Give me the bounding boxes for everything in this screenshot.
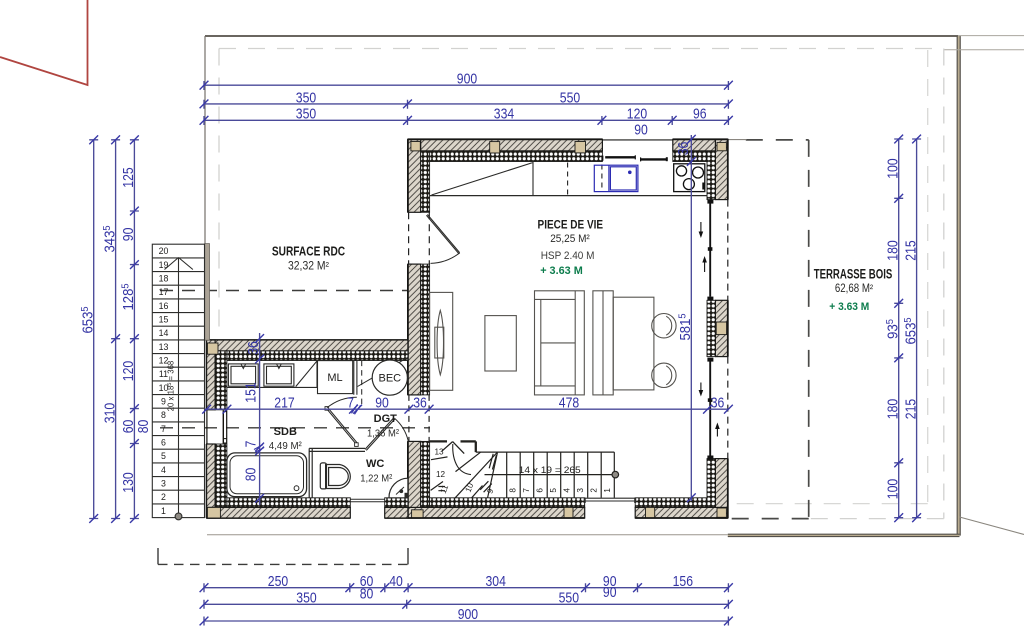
svg-text:14 x 19 = 265: 14 x 19 = 265 [519,465,581,475]
svg-text:151: 151 [243,382,260,402]
svg-text:2: 2 [161,492,166,502]
svg-text:13: 13 [434,448,444,457]
svg-text:900: 900 [458,606,478,623]
svg-text:40: 40 [389,573,403,590]
svg-text:334: 334 [494,106,514,123]
svg-text:180: 180 [885,240,902,260]
svg-text:350: 350 [296,590,316,607]
svg-text:12: 12 [436,470,446,479]
svg-text:PIECE DE VIE: PIECE DE VIE [538,219,604,231]
svg-text:130: 130 [120,472,137,492]
svg-text:+ 3.63 M: + 3.63 M [540,265,583,277]
svg-text:4: 4 [562,488,571,493]
svg-text:TERRASSE BOIS: TERRASSE BOIS [814,267,893,282]
svg-text:7: 7 [522,488,531,493]
svg-text:36: 36 [675,142,692,156]
svg-text:304: 304 [486,573,506,590]
svg-text:7: 7 [243,441,260,448]
svg-text:250: 250 [268,573,288,590]
svg-text:BEC: BEC [378,372,401,384]
svg-text:125: 125 [120,167,137,187]
svg-text:80: 80 [360,585,374,602]
svg-text:90: 90 [120,228,137,242]
svg-text:478: 478 [559,394,579,411]
svg-text:5: 5 [161,451,166,461]
svg-text:90: 90 [603,584,617,601]
svg-text:HSP 2.40 M: HSP 2.40 M [541,250,595,262]
svg-text:8: 8 [508,488,517,493]
svg-text:WC: WC [366,458,384,470]
svg-text:4: 4 [161,465,166,475]
svg-text:1,36 M²: 1,36 M² [367,428,399,440]
svg-text:550: 550 [559,590,579,607]
svg-text:900: 900 [457,71,477,88]
svg-text:6: 6 [535,488,544,493]
svg-text:9: 9 [161,397,166,407]
svg-text:80: 80 [243,468,260,482]
svg-text:180: 180 [885,399,902,419]
svg-text:7: 7 [347,394,354,411]
svg-text:1: 1 [603,488,612,493]
svg-text:7: 7 [161,424,166,434]
svg-text:90: 90 [375,394,389,411]
svg-text:36: 36 [413,394,427,411]
svg-text:+ 3.63 M: + 3.63 M [829,301,869,313]
svg-text:32,32 M²: 32,32 M² [288,260,329,272]
svg-text:215: 215 [902,399,919,419]
svg-text:DGT: DGT [374,413,398,425]
svg-text:62,68 M²: 62,68 M² [835,283,873,295]
svg-text:20: 20 [159,246,169,256]
svg-text:350: 350 [296,106,316,123]
svg-text:SURFACE RDC: SURFACE RDC [272,244,346,259]
svg-text:156: 156 [673,573,693,590]
svg-text:15: 15 [159,315,169,325]
svg-text:215: 215 [902,240,919,260]
svg-text:100: 100 [885,158,902,178]
svg-text:17: 17 [159,287,169,297]
svg-text:5: 5 [549,488,558,493]
svg-text:1,22 M²: 1,22 M² [360,473,392,485]
svg-text:14: 14 [159,328,169,338]
svg-text:20 x 185 = 368: 20 x 185 = 368 [166,361,175,412]
svg-text:3: 3 [576,488,585,493]
svg-text:217: 217 [274,394,294,411]
svg-text:SDB: SDB [274,426,297,438]
svg-text:13: 13 [159,342,169,352]
svg-text:4,49 M²: 4,49 M² [269,440,302,452]
svg-text:8: 8 [161,410,166,420]
svg-text:1: 1 [161,506,166,516]
svg-text:120: 120 [627,106,647,123]
svg-text:ML: ML [327,372,342,384]
svg-text:6: 6 [161,438,166,448]
svg-text:16: 16 [159,301,169,311]
svg-text:550: 550 [560,89,580,106]
svg-text:18: 18 [159,274,169,284]
svg-text:36: 36 [711,394,725,411]
svg-text:36: 36 [245,341,262,355]
svg-text:25,25 M²: 25,25 M² [550,233,590,245]
svg-text:120: 120 [120,361,137,381]
svg-text:310: 310 [101,403,118,423]
svg-text:90: 90 [634,122,648,139]
svg-text:100: 100 [885,479,902,499]
svg-text:3: 3 [161,479,166,489]
svg-text:96: 96 [693,106,707,123]
svg-text:80: 80 [135,420,152,434]
svg-text:19: 19 [159,260,169,270]
svg-text:2: 2 [589,488,598,493]
svg-text:350: 350 [296,89,316,106]
